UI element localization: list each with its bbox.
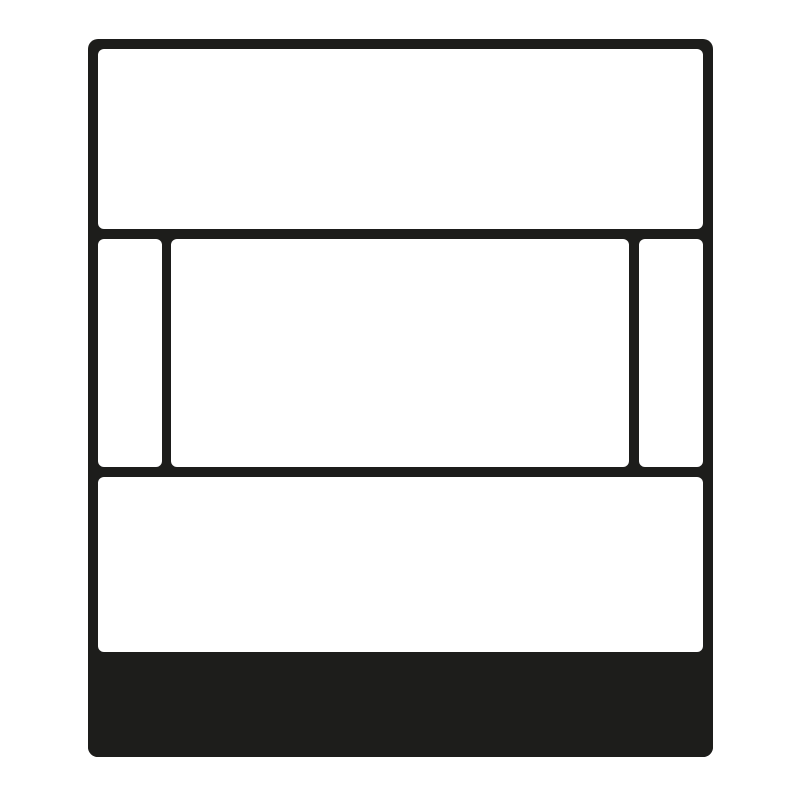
base-band [88,652,713,757]
bottom-panel [98,477,703,652]
middle-left-panel [98,239,162,467]
faceplate-outline [88,39,713,757]
middle-right-panel [639,239,703,467]
middle-center-panel [171,239,629,467]
pictogram-canvas [0,0,800,800]
top-panel [98,49,703,229]
